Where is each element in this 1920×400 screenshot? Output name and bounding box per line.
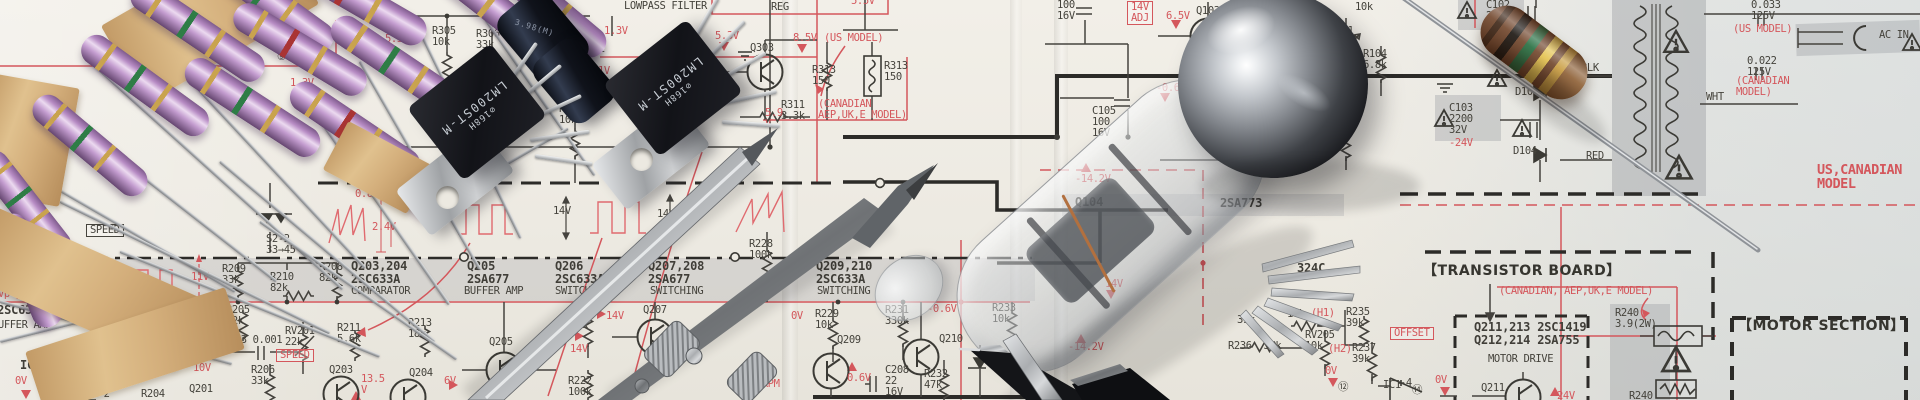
pencil-tip bbox=[960, 349, 979, 350]
compass-front-leg bbox=[468, 147, 760, 400]
photo-of-schematic: LOWPASS FILTERREG5.5V1.6VR305 10kR306 33… bbox=[0, 0, 1920, 400]
compass-pivot-screw bbox=[686, 348, 702, 364]
compass-pivot-screw bbox=[635, 379, 649, 393]
tools-overlay bbox=[0, 0, 1920, 400]
